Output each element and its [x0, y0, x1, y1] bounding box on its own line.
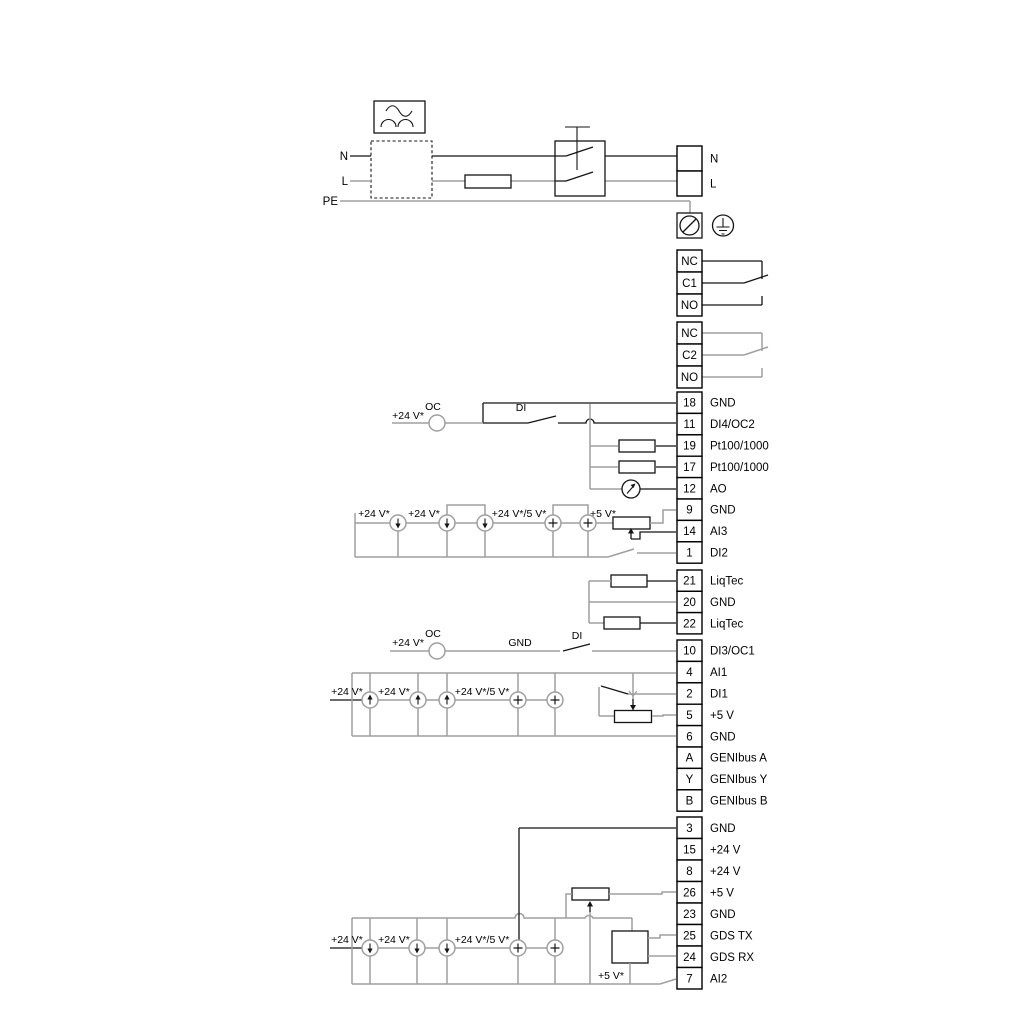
terminal-number: Y — [686, 774, 694, 786]
terminal-label: GENIbus B — [710, 796, 768, 808]
label-n-left: N — [340, 151, 348, 163]
current-source-icon — [362, 692, 378, 708]
terminal-number: 6 — [686, 731, 692, 743]
label-di: DI — [572, 630, 583, 642]
terminal-number: 23 — [683, 909, 696, 921]
terminal-number: NO — [681, 372, 698, 384]
terminal-label: GND — [710, 597, 736, 609]
current-source-icon — [439, 692, 455, 708]
terminal-number: 1 — [686, 548, 692, 560]
terminal-number: A — [686, 753, 694, 765]
voltage-source-icon — [510, 692, 526, 708]
terminal-number: 22 — [683, 618, 696, 630]
terminal-number: 7 — [686, 973, 692, 985]
terminal-number: 10 — [683, 646, 696, 658]
voltage-source-icon — [547, 940, 563, 956]
terminal-number: 18 — [683, 398, 696, 410]
terminal-label: LiqTec — [710, 576, 743, 588]
current-source-icon — [409, 940, 425, 956]
label-plus24v-5v: +24 V*/5 V* — [492, 508, 547, 520]
terminal-label: N — [710, 154, 718, 166]
terminal-group-relay1: NCC1NO — [677, 250, 702, 316]
terminal-label: GND — [710, 823, 736, 835]
terminal-label: GND — [710, 505, 736, 517]
wiring-diagram-page: N L PE +24 V* OC DI — [0, 0, 1024, 1024]
current-source-icon — [439, 515, 455, 531]
label-plus24v: +24 V* — [358, 508, 390, 520]
voltage-source-icon — [547, 692, 563, 708]
terminal-label: Pt100/1000 — [710, 462, 769, 474]
terminal-number: 12 — [683, 483, 696, 495]
main-switch-icon — [555, 127, 605, 196]
terminal-number: 8 — [686, 866, 692, 878]
open-collector-icon — [429, 643, 445, 659]
pt100-resistor-icon — [619, 440, 655, 452]
relay1-wiring — [701, 261, 768, 305]
relay2-wiring — [701, 333, 768, 377]
terminal-blocks: NLNCC1NONCC2NO18GND11DI4/OC219Pt100/1000… — [677, 146, 769, 989]
current-source-icon — [477, 515, 493, 531]
mains-power-section: N L PE — [323, 101, 734, 238]
terminal-label: Pt100/1000 — [710, 441, 769, 453]
terminal-number: 4 — [686, 667, 693, 679]
terminal-number: B — [686, 796, 694, 808]
gds-sensor-box — [612, 931, 648, 963]
label-pe: PE — [323, 196, 339, 208]
current-source-icon — [362, 940, 378, 956]
terminal-label: AI3 — [710, 526, 727, 538]
terminal-number: 2 — [686, 689, 692, 701]
terminal-number: 3 — [686, 823, 692, 835]
liqtec-sensor-icon — [611, 575, 647, 587]
label-plus24v-5v: +24 V*/5 V* — [455, 686, 510, 698]
terminal-label: GENIbus A — [710, 753, 767, 765]
terminal-label: +5 V — [710, 887, 734, 899]
terminal-label: AI2 — [710, 973, 727, 985]
di3-oc1-wiring: +24 V* OC GND DI — [390, 628, 676, 659]
fuse-icon — [465, 175, 511, 188]
terminal-label: +5 V — [710, 710, 734, 722]
label-oc: OC — [425, 628, 441, 640]
current-source-icon — [390, 515, 406, 531]
terminal-number: 21 — [683, 576, 696, 588]
analog-output-meter-icon — [622, 480, 640, 498]
terminal-group-io2: 10DI3/OC14AI12DI15+5 V6GNDAGENIbus AYGEN… — [677, 640, 768, 811]
terminal-cell — [677, 171, 702, 196]
terminal-label: GND — [710, 731, 736, 743]
mains-wiring — [340, 156, 690, 213]
terminal-label: DI3/OC1 — [710, 646, 755, 658]
terminal-number: 17 — [683, 462, 696, 474]
terminal-group-liqtec: 21LiqTec20GND22LiqTec — [677, 570, 743, 634]
terminal-number: 20 — [683, 597, 696, 609]
label-plus24v: +24 V* — [378, 686, 410, 698]
terminal-label: +24 V — [710, 866, 741, 878]
label-plus24v: +24 V* — [331, 686, 363, 698]
label-oc: OC — [425, 401, 441, 413]
terminal-number: 25 — [683, 930, 696, 942]
io1-wiring: +24 V* OC DI — [392, 401, 676, 498]
terminal-label: DI4/OC2 — [710, 419, 755, 431]
terminal-number: 9 — [686, 505, 692, 517]
current-source-icon — [439, 940, 455, 956]
liqtec-sensor-icon — [604, 617, 640, 629]
terminal-number: 26 — [683, 887, 696, 899]
ai1-cluster: +24 V* +24 V* +24 V*/5 V* — [330, 673, 676, 736]
potentiometer-icon — [572, 888, 609, 900]
label-di: DI — [516, 402, 527, 414]
emc-filter-box — [371, 141, 432, 198]
terminal-label: GDS RX — [710, 952, 754, 964]
terminal-number: NO — [681, 300, 698, 312]
terminal-label: DI2 — [710, 548, 728, 560]
terminal-cell — [677, 146, 702, 171]
label-plus24v-5v: +24 V*/5 V* — [455, 934, 510, 946]
label-plus24v: +24 V* — [408, 508, 440, 520]
terminal-number: C2 — [682, 350, 697, 362]
terminal-label: GENIbus Y — [710, 774, 768, 786]
terminal-label: LiqTec — [710, 618, 743, 630]
terminal-group-io3: 3GND15+24 V8+24 V26+5 V23GND25GDS TX24GD… — [677, 817, 754, 989]
label-plus24v: +24 V* — [378, 934, 410, 946]
potentiometer-icon — [613, 517, 650, 529]
label-gnd: GND — [508, 637, 532, 649]
terminal-number: NC — [681, 256, 698, 268]
terminal-number: 14 — [683, 526, 696, 538]
terminal-label: DI1 — [710, 689, 728, 701]
terminal-label: GND — [710, 398, 736, 410]
voltage-source-icon — [545, 515, 561, 531]
terminal-group-io1: 18GND11DI4/OC219Pt100/100017Pt100/100012… — [677, 392, 769, 563]
terminal-group-mains: NL — [677, 146, 718, 196]
terminal-number: NC — [681, 328, 698, 340]
label-plus24v: +24 V* — [392, 637, 424, 649]
terminal-label: GND — [710, 909, 736, 921]
ai3-cluster: +24 V* +24 V* +24 V*/5 V* +5 V* — [355, 505, 676, 557]
terminal-number: 19 — [683, 441, 696, 453]
terminal-label: AO — [710, 483, 727, 495]
open-collector-icon — [429, 415, 445, 431]
label-plus24v: +24 V* — [392, 410, 424, 422]
ac-supply-icon — [374, 101, 425, 133]
screw-terminal-icon — [677, 213, 702, 238]
current-source-icon — [410, 692, 426, 708]
label-plus24v: +24 V* — [331, 934, 363, 946]
ai2-cluster: +24 V* +24 V* +24 V*/5 V* +5 V* — [330, 828, 676, 984]
pt100-resistor-icon — [619, 461, 655, 473]
potentiometer-icon — [615, 711, 652, 723]
wiring-diagram-canvas: N L PE +24 V* OC DI — [0, 0, 1024, 1024]
terminal-number: 5 — [686, 710, 692, 722]
terminal-number: C1 — [682, 278, 697, 290]
terminal-group-relay2: NCC2NO — [677, 322, 702, 388]
liqtec-wiring — [589, 575, 676, 629]
terminal-number: 24 — [683, 952, 696, 964]
voltage-source-icon — [510, 940, 526, 956]
earth-ground-icon — [713, 215, 734, 236]
terminal-label: GDS TX — [710, 930, 753, 942]
label-plus5v: +5 V* — [590, 508, 616, 520]
label-plus5v: +5 V* — [598, 970, 624, 982]
terminal-number: 15 — [683, 844, 696, 856]
terminal-label: L — [710, 179, 717, 191]
label-l-left: L — [342, 176, 349, 188]
terminal-label: +24 V — [710, 844, 741, 856]
terminal-number: 11 — [684, 419, 696, 431]
terminal-label: AI1 — [710, 667, 727, 679]
